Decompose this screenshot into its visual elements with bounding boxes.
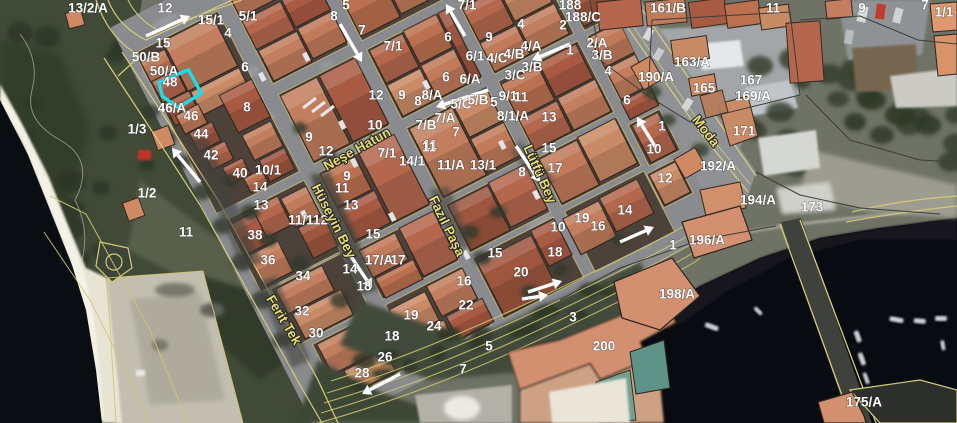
- svg-text:173: 173: [801, 200, 824, 215]
- svg-text:11: 11: [422, 140, 437, 155]
- svg-text:7: 7: [921, 0, 929, 13]
- svg-text:13: 13: [253, 198, 269, 213]
- svg-text:7: 7: [358, 23, 366, 38]
- svg-text:7/B: 7/B: [415, 118, 436, 133]
- svg-text:22: 22: [458, 298, 473, 313]
- svg-text:196/A: 196/A: [689, 233, 725, 248]
- svg-text:13/1: 13/1: [470, 158, 497, 173]
- svg-text:14: 14: [342, 262, 358, 277]
- svg-text:11: 11: [514, 90, 529, 105]
- svg-text:1/1: 1/1: [935, 5, 954, 20]
- svg-text:4: 4: [604, 64, 612, 79]
- svg-text:5: 5: [342, 0, 350, 13]
- svg-text:171: 171: [733, 124, 756, 139]
- svg-text:38: 38: [247, 228, 263, 243]
- svg-text:12: 12: [657, 171, 672, 186]
- svg-text:11: 11: [766, 1, 781, 16]
- svg-text:7: 7: [452, 125, 460, 140]
- svg-text:8: 8: [330, 9, 338, 24]
- svg-text:1: 1: [658, 119, 666, 134]
- svg-text:8/1/A: 8/1/A: [497, 109, 530, 124]
- svg-text:1/3: 1/3: [128, 122, 147, 137]
- svg-text:15: 15: [155, 36, 171, 51]
- svg-text:11: 11: [335, 181, 350, 196]
- svg-text:34: 34: [295, 269, 311, 284]
- svg-text:18: 18: [547, 245, 563, 260]
- svg-text:1/2: 1/2: [138, 186, 157, 201]
- svg-text:165: 165: [693, 81, 716, 96]
- svg-text:10: 10: [550, 220, 565, 235]
- svg-text:8: 8: [243, 100, 251, 115]
- svg-text:6/1: 6/1: [466, 49, 485, 64]
- svg-text:11/A: 11/A: [437, 158, 465, 173]
- svg-text:8/A: 8/A: [421, 88, 442, 103]
- svg-text:6: 6: [444, 30, 452, 45]
- svg-text:46/A: 46/A: [158, 101, 187, 116]
- svg-text:9: 9: [485, 30, 493, 45]
- svg-text:5: 5: [490, 95, 498, 110]
- svg-text:190/A: 190/A: [638, 70, 674, 85]
- svg-text:2: 2: [559, 18, 567, 33]
- svg-text:17/A: 17/A: [365, 253, 394, 268]
- svg-text:32: 32: [294, 304, 309, 319]
- svg-text:12: 12: [157, 1, 172, 16]
- svg-text:5/B: 5/B: [467, 93, 488, 108]
- svg-text:15: 15: [487, 246, 503, 261]
- svg-text:16: 16: [456, 274, 472, 289]
- svg-text:50/B: 50/B: [132, 50, 161, 65]
- svg-text:19: 19: [403, 308, 418, 323]
- svg-text:15: 15: [541, 141, 557, 156]
- svg-text:167: 167: [740, 73, 763, 88]
- svg-text:161/B: 161/B: [650, 1, 686, 16]
- svg-text:48: 48: [162, 75, 178, 90]
- svg-text:18: 18: [384, 329, 400, 344]
- svg-text:16: 16: [590, 219, 606, 234]
- svg-text:14: 14: [617, 203, 633, 218]
- svg-text:9: 9: [398, 88, 406, 103]
- svg-text:3: 3: [569, 310, 577, 325]
- svg-text:24: 24: [426, 319, 442, 334]
- svg-text:192/A: 192/A: [700, 159, 736, 174]
- svg-text:6: 6: [623, 93, 631, 108]
- svg-text:10: 10: [646, 142, 661, 157]
- svg-text:7: 7: [459, 362, 467, 377]
- svg-text:4: 4: [224, 26, 232, 41]
- svg-text:3/B: 3/B: [591, 48, 612, 63]
- svg-text:200: 200: [593, 339, 616, 354]
- svg-text:6: 6: [241, 60, 249, 75]
- svg-text:9: 9: [858, 1, 866, 16]
- svg-text:169/A: 169/A: [735, 89, 771, 104]
- svg-text:14/1: 14/1: [399, 154, 426, 169]
- svg-text:13: 13: [343, 198, 359, 213]
- svg-text:1: 1: [669, 238, 677, 253]
- svg-text:44: 44: [193, 127, 209, 142]
- svg-text:14: 14: [252, 180, 268, 195]
- svg-text:7/A: 7/A: [434, 111, 455, 126]
- svg-text:20: 20: [513, 265, 528, 280]
- svg-text:19: 19: [574, 211, 589, 226]
- svg-text:7/1: 7/1: [384, 39, 403, 54]
- svg-text:198/A: 198/A: [659, 287, 695, 302]
- svg-text:30: 30: [308, 326, 323, 341]
- svg-text:15: 15: [365, 227, 381, 242]
- svg-text:11: 11: [179, 225, 194, 240]
- svg-text:8: 8: [518, 165, 526, 180]
- svg-text:7/1: 7/1: [458, 0, 477, 13]
- svg-text:4/A: 4/A: [520, 39, 541, 54]
- svg-text:17: 17: [547, 161, 562, 176]
- svg-text:9: 9: [305, 130, 313, 145]
- svg-text:4: 4: [517, 17, 525, 32]
- svg-text:13: 13: [541, 110, 557, 125]
- svg-text:15/1: 15/1: [198, 13, 225, 28]
- svg-text:40: 40: [232, 166, 247, 181]
- svg-text:1: 1: [566, 43, 574, 58]
- svg-text:3/C: 3/C: [504, 68, 525, 83]
- svg-text:28: 28: [354, 366, 370, 381]
- svg-text:188/C: 188/C: [565, 10, 601, 25]
- svg-text:5/1: 5/1: [239, 9, 258, 24]
- svg-text:7/1: 7/1: [378, 146, 397, 161]
- svg-text:13/2/A: 13/2/A: [68, 1, 108, 16]
- svg-text:12: 12: [368, 88, 383, 103]
- svg-text:6/A: 6/A: [459, 72, 480, 87]
- svg-text:175/A: 175/A: [846, 395, 882, 410]
- svg-text:11/112: 11/112: [288, 213, 328, 228]
- svg-text:42: 42: [203, 148, 218, 163]
- svg-text:36: 36: [260, 253, 276, 268]
- svg-text:46: 46: [183, 109, 199, 124]
- svg-text:163/A: 163/A: [674, 55, 710, 70]
- svg-text:194/A: 194/A: [740, 193, 776, 208]
- svg-text:18: 18: [356, 279, 372, 294]
- svg-text:6: 6: [442, 70, 450, 85]
- svg-text:5: 5: [485, 339, 493, 354]
- svg-text:17: 17: [390, 253, 405, 268]
- svg-text:26: 26: [377, 350, 393, 365]
- svg-text:10/1: 10/1: [255, 163, 282, 178]
